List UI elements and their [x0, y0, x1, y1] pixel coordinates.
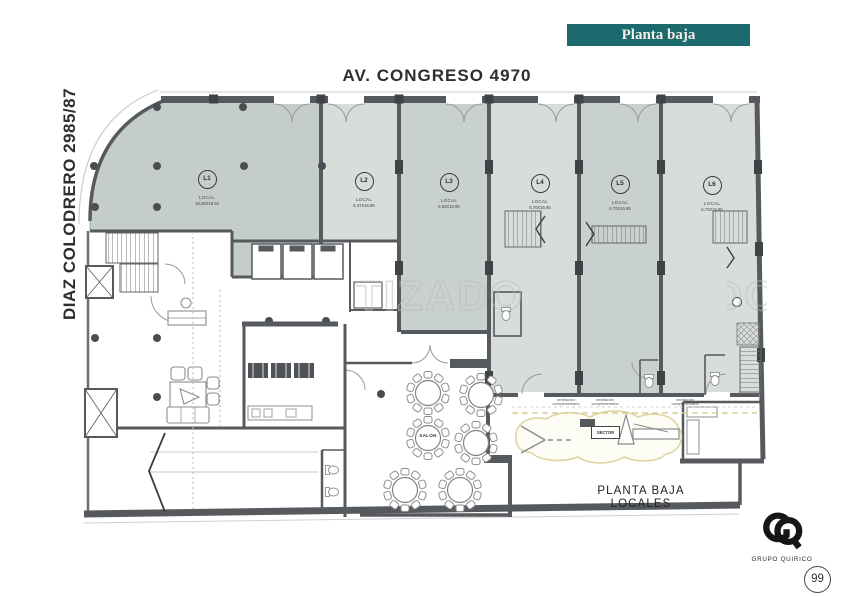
- vent-label-line2: complementaria: [660, 402, 710, 406]
- local-label-l2: L2 LOCAL 5.47X16.95: [334, 172, 394, 208]
- local-type: LOCAL: [334, 197, 394, 202]
- local-type: LOCAL: [419, 198, 479, 203]
- local-type: LOCAL: [682, 201, 742, 206]
- local-dims: 6.70X16.95: [590, 206, 650, 211]
- watermark-fragment: TIZADO: [727, 272, 767, 320]
- brand-block: GRUPO QUIRICO: [727, 512, 837, 563]
- gq-logo-icon: [759, 512, 805, 550]
- floor-badge: Planta baja: [567, 24, 750, 46]
- local-label-l3: L3 LOCAL 5.92X16.95: [419, 173, 479, 209]
- salon-label: SALON: [404, 433, 452, 438]
- local-type: LOCAL: [177, 195, 237, 200]
- local-dims: 5.47X16.95: [334, 203, 394, 208]
- plan-caption-line2: LOCALES: [576, 498, 706, 511]
- local-type: LOCAL: [590, 200, 650, 205]
- local-dims: 6.70X16.95: [510, 205, 570, 210]
- watermark: TIZADO: [356, 272, 524, 320]
- watermark-fragment-text: TIZADO: [727, 272, 767, 320]
- sector-label: SECTOR: [591, 426, 620, 439]
- local-type: LOCAL: [510, 199, 570, 204]
- vent-label-line2: complementaria: [580, 402, 630, 406]
- bottom-right-room: [680, 402, 764, 461]
- floorplan-page: Planta baja AV. CONGRESO 4970 DIAZ COLOD…: [0, 0, 844, 596]
- kitchen: [242, 324, 338, 428]
- plan-caption: PLANTA BAJA LOCALES: [576, 485, 706, 511]
- local-dims: 6.73X16.95: [682, 207, 742, 212]
- local-label-l1: L1 LOCAL 16.28X18.94: [177, 170, 237, 206]
- garage: [118, 428, 346, 512]
- local-id-badge: L5: [611, 175, 630, 194]
- lobby-furniture: [167, 298, 219, 423]
- local-id-badge: L1: [198, 170, 217, 189]
- local-id-badge: L3: [440, 173, 459, 192]
- local-id-badge: L4: [531, 174, 550, 193]
- local-id-badge: L6: [703, 176, 722, 195]
- page-number-badge: 99: [804, 566, 831, 593]
- local-id-badge: L2: [355, 172, 374, 191]
- local-label-l6: L6 LOCAL 6.73X16.95: [682, 176, 742, 212]
- vent-label: ventilación complementaria: [580, 398, 630, 407]
- plan-title: AV. CONGRESO 4970: [282, 66, 592, 86]
- local-dims: 5.92X16.95: [419, 204, 479, 209]
- local-dims: 16.28X18.94: [177, 201, 237, 206]
- local-label-l4: L4 LOCAL 6.70X16.95: [510, 174, 570, 210]
- brand-name: GRUPO QUIRICO: [727, 556, 837, 563]
- vent-label: ventilación complementaria: [660, 398, 710, 407]
- local-label-l5: L5 LOCAL 6.70X16.95: [590, 175, 650, 211]
- plan-caption-line1: PLANTA BAJA: [576, 485, 706, 498]
